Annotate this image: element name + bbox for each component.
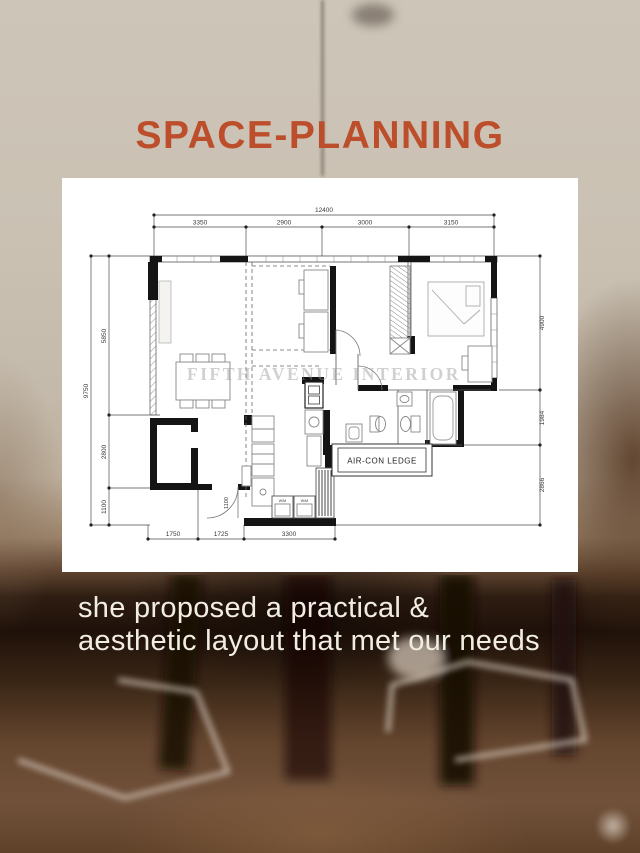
- dim-left-2: 2800: [101, 444, 108, 459]
- logo-watermark-blob: [596, 806, 630, 846]
- furniture: [159, 266, 492, 518]
- post-image: SPACE-PLANNING: [0, 0, 640, 853]
- dim-right-1: 4900: [539, 315, 546, 330]
- sideboard: [159, 281, 171, 343]
- dim-bottom-3: 3300: [282, 531, 297, 538]
- dim-left-1: 5850: [101, 328, 108, 343]
- service-strip: [316, 468, 334, 518]
- dim-bottom-1: 1750: [166, 531, 181, 538]
- dim-left-3: 1100: [101, 500, 108, 514]
- bed: [428, 282, 484, 336]
- dim-bottom-2: 1725: [214, 531, 229, 538]
- dim-top-total: 12400: [315, 207, 333, 214]
- dim-left-total: 9750: [83, 383, 90, 398]
- kitchen-counter-left: [242, 416, 274, 506]
- caption-line-1: she proposed a practical &: [78, 592, 598, 625]
- toilet-1: [401, 416, 421, 432]
- sink-2: [346, 424, 362, 442]
- bedroom-desk: [468, 346, 492, 382]
- aircon-ledge: AIR-CON LEDGE: [332, 444, 432, 476]
- wm-label-2: W/M: [301, 499, 308, 503]
- kitchen-counter-mid: [305, 382, 323, 466]
- aircon-ledge-label: AIR-CON LEDGE: [347, 457, 417, 466]
- shelter-door-gap: [191, 432, 198, 448]
- study-desk-2: [304, 312, 328, 352]
- page-title: SPACE-PLANNING: [0, 114, 640, 158]
- caption-line-2: aesthetic layout that met our needs: [78, 625, 598, 658]
- background-dark-blob: [352, 4, 394, 26]
- dim-top-4: 3150: [444, 220, 459, 227]
- dim-top-2: 2900: [277, 220, 292, 227]
- dim-right-2: 1984: [539, 410, 546, 425]
- sink-1: [397, 392, 412, 406]
- study-desk-1: [304, 270, 328, 310]
- floor-plan-drawing: 12400 3350 2900 3000 3150 9750 5850 2800…: [62, 178, 578, 572]
- floor-plan-card: 12400 3350 2900 3000 3150 9750 5850 2800…: [62, 178, 578, 572]
- dim-right-3: 2866: [539, 477, 546, 492]
- toilet-2: [370, 416, 386, 432]
- watermark-text: FIFTH AVENUE INTERIOR: [187, 364, 461, 384]
- caption: she proposed a practical & aesthetic lay…: [78, 592, 598, 658]
- dim-top-3: 3000: [358, 220, 373, 227]
- dim-entrance: 1100: [224, 497, 230, 509]
- wardrobe: [390, 266, 410, 338]
- wm-label-1: W/M: [279, 499, 286, 503]
- dim-top-1: 3350: [193, 220, 208, 227]
